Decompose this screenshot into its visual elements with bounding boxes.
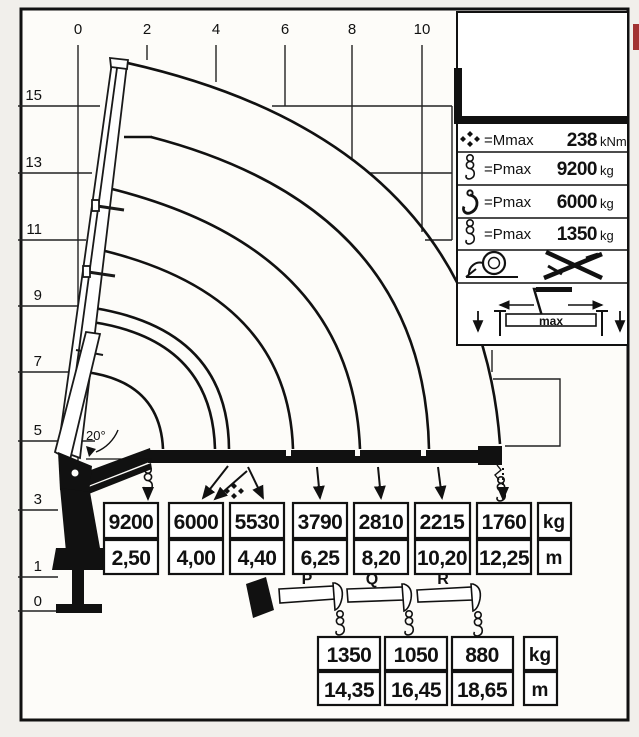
ext-load-cell: 880 [465, 644, 499, 667]
load-cell: 1760 [482, 511, 527, 534]
legend-value: 6000 [557, 192, 597, 213]
main-capacity-table: 9200 6000 5530 3790 2810 2215 1760 2,50 … [104, 503, 571, 574]
legend-label: =Pmax [484, 226, 532, 243]
load-chart-page: 0 2 4 6 8 10 15 13 11 9 7 5 3 1 0 [0, 0, 639, 737]
load-cell: 5530 [235, 511, 280, 534]
legend-label: =Pmax [484, 161, 532, 178]
unit-kg: kg [543, 512, 565, 533]
x-tick-0: 0 [74, 21, 82, 38]
x-tick-8: 8 [348, 21, 356, 38]
load-cell: 6000 [174, 511, 219, 534]
y-tick-11: 11 [26, 221, 42, 238]
y-tick-7: 7 [34, 353, 42, 370]
y-tick-5: 5 [34, 422, 42, 439]
legend-label: =Mmax [484, 132, 534, 149]
ext-load-cell: 1350 [327, 644, 372, 667]
ext-label-R: R [437, 571, 449, 588]
x-tick-4: 4 [212, 21, 220, 38]
boom-angle-label: 20° [86, 428, 106, 443]
legend-unit: kg [600, 163, 614, 178]
y-tick-1: 1 [34, 558, 42, 575]
legend-unit: kg [600, 228, 614, 243]
ext-unit-kg: kg [529, 645, 551, 666]
ext-reach-cell: 16,45 [391, 679, 442, 702]
x-tick-6: 6 [281, 21, 289, 38]
ext-label-Q: Q [366, 571, 378, 588]
legend-unit: kNm [600, 134, 627, 149]
legend-unit: kg [600, 196, 614, 211]
y-tick-3: 3 [34, 491, 42, 508]
y-tick-13: 13 [25, 154, 42, 171]
ext-reach-cell: 14,35 [324, 679, 375, 702]
red-edge-mark [633, 24, 639, 50]
reach-cell: 6,25 [301, 547, 341, 570]
ext-load-cell: 1050 [394, 644, 439, 667]
reach-cell: 8,20 [362, 547, 401, 570]
unit-m: m [546, 548, 563, 569]
reach-cell: 4,40 [238, 547, 277, 570]
ext-reach-cell: 18,65 [457, 679, 508, 702]
ext-label-P: P [302, 571, 313, 588]
crane-load-diagram: 0 2 4 6 8 10 15 13 11 9 7 5 3 1 0 [0, 0, 639, 737]
reach-cell: 4,00 [177, 547, 216, 570]
x-tick-10: 10 [414, 21, 431, 38]
load-cell: 9200 [109, 511, 154, 534]
legend-value: 9200 [557, 159, 597, 180]
x-tick-2: 2 [143, 21, 151, 38]
legend-panel: =Mmax 238 kNm =Pmax 9200 kg =Pmax 6000 k… [454, 12, 628, 345]
outrigger-max-label: max [539, 314, 563, 328]
load-cell: 3790 [298, 511, 343, 534]
ext-unit-m: m [532, 680, 549, 701]
reach-cell: 2,50 [112, 547, 151, 570]
y-tick-9: 9 [34, 287, 42, 304]
legend-value: 1350 [557, 224, 597, 245]
reach-cell: 10,20 [417, 547, 467, 570]
load-cell: 2215 [420, 511, 466, 534]
y-tick-0: 0 [34, 593, 42, 610]
reach-cell: 12,25 [479, 547, 530, 570]
legend-value: 238 [567, 130, 597, 151]
legend-label: =Pmax [484, 194, 532, 211]
load-cell: 2810 [359, 511, 404, 534]
y-tick-15: 15 [25, 87, 42, 104]
